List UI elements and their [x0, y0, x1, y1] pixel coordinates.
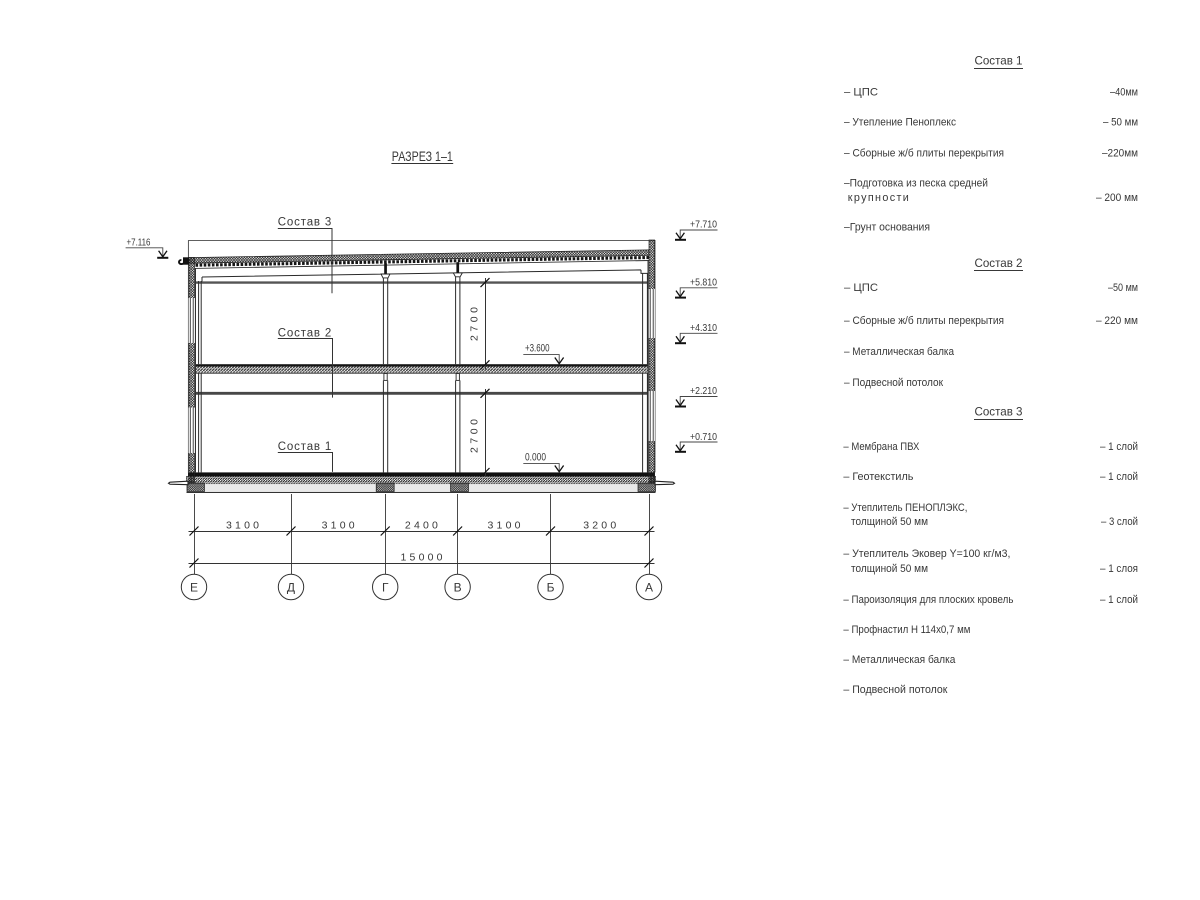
svg-text:Д: Д [287, 581, 295, 595]
svg-text:3100: 3100 [488, 520, 521, 532]
svg-text:– ЦПС: – ЦПС [844, 282, 878, 294]
svg-text:+7.710: +7.710 [690, 219, 717, 231]
svg-text:– Сборные ж/б плиты перекрытия: – Сборные ж/б плиты перекрытия [844, 148, 1004, 160]
svg-text:– 1 слой: – 1 слой [1100, 441, 1138, 453]
svg-text:крупности: крупности [848, 192, 909, 204]
svg-text:+7.116: +7.116 [127, 237, 151, 249]
svg-text:–Подготовка из песка средней: –Подготовка из песка средней [844, 178, 988, 190]
svg-text:+2.210: +2.210 [690, 385, 717, 397]
svg-text:– Утеплитель Эковер Y=100 кг/м: – Утеплитель Эковер Y=100 кг/м3, [843, 548, 1010, 560]
svg-text:– Металлическая балка: – Металлическая балка [843, 654, 955, 666]
svg-text:– Сборные ж/б плиты перекрытия: – Сборные ж/б плиты перекрытия [844, 315, 1004, 327]
svg-text:Б: Б [547, 581, 555, 595]
svg-text:0.000: 0.000 [525, 451, 546, 463]
svg-text:Состав 3: Состав 3 [975, 405, 1023, 419]
svg-text:Г: Г [382, 581, 389, 595]
svg-text:2700: 2700 [469, 307, 481, 341]
svg-text:Е: Е [190, 581, 198, 595]
svg-text:– Металлическая балка: – Металлическая балка [844, 346, 954, 358]
svg-text:15000: 15000 [401, 552, 443, 564]
svg-text:+3.600: +3.600 [525, 343, 550, 355]
svg-text:3100: 3100 [322, 520, 355, 532]
svg-text:–40мм: –40мм [1110, 87, 1138, 99]
svg-text:– 50 мм: – 50 мм [1103, 117, 1138, 129]
svg-text:– 220 мм: – 220 мм [1096, 315, 1138, 327]
svg-text:– Профнастил Н 114х0,7 мм: – Профнастил Н 114х0,7 мм [843, 624, 970, 636]
svg-text:Состав 1: Состав 1 [278, 441, 332, 453]
svg-text:– Утеплитель ПЕНОПЛЭКС,: – Утеплитель ПЕНОПЛЭКС, [843, 502, 967, 514]
svg-text:Состав 2: Состав 2 [975, 256, 1023, 270]
svg-text:– Утепление Пеноплекс: – Утепление Пеноплекс [844, 117, 957, 129]
svg-text:2700: 2700 [469, 419, 481, 453]
svg-text:– 200 мм: – 200 мм [1096, 192, 1138, 204]
svg-text:– Геотекстиль: – Геотекстиль [843, 471, 913, 483]
svg-text:+4.310: +4.310 [690, 322, 717, 334]
svg-text:– 3 слой: – 3 слой [1101, 516, 1138, 528]
svg-text:– Подвесной потолок: – Подвесной потолок [844, 377, 943, 389]
svg-text:3100: 3100 [226, 520, 259, 532]
svg-text:– 1 слоя: – 1 слоя [1100, 563, 1138, 575]
svg-text:+5.810: +5.810 [690, 277, 717, 289]
svg-text:– 1 слой: – 1 слой [1100, 594, 1138, 606]
svg-text:–Грунт основания: –Грунт основания [844, 222, 930, 234]
svg-text:2400: 2400 [405, 520, 438, 532]
svg-text:3200: 3200 [583, 520, 616, 532]
svg-text:А: А [645, 581, 653, 595]
svg-text:– Пароизоляция для плоских кро: – Пароизоляция для плоских кровель [843, 594, 1013, 606]
svg-text:РАЗРЕЗ 1–1: РАЗРЕЗ 1–1 [392, 149, 453, 164]
svg-text:толщиной 50 мм: толщиной 50 мм [851, 516, 928, 528]
svg-text:– ЦПС: – ЦПС [844, 87, 878, 99]
svg-text:+0.710: +0.710 [690, 431, 717, 443]
svg-text:В: В [454, 581, 462, 595]
svg-text:– Подвесной потолок: – Подвесной потолок [843, 684, 947, 696]
svg-text:Состав 1: Состав 1 [975, 54, 1023, 68]
svg-text:–50 мм: –50 мм [1108, 282, 1138, 294]
svg-text:Состав 3: Состав 3 [278, 216, 332, 228]
svg-text:толщиной 50 мм: толщиной 50 мм [851, 563, 928, 575]
svg-text:Состав 2: Состав 2 [278, 327, 332, 339]
svg-text:– Мембрана ПВХ: – Мембрана ПВХ [843, 441, 919, 453]
svg-text:–220мм: –220мм [1102, 148, 1138, 160]
svg-text:– 1 слой: – 1 слой [1100, 471, 1138, 483]
